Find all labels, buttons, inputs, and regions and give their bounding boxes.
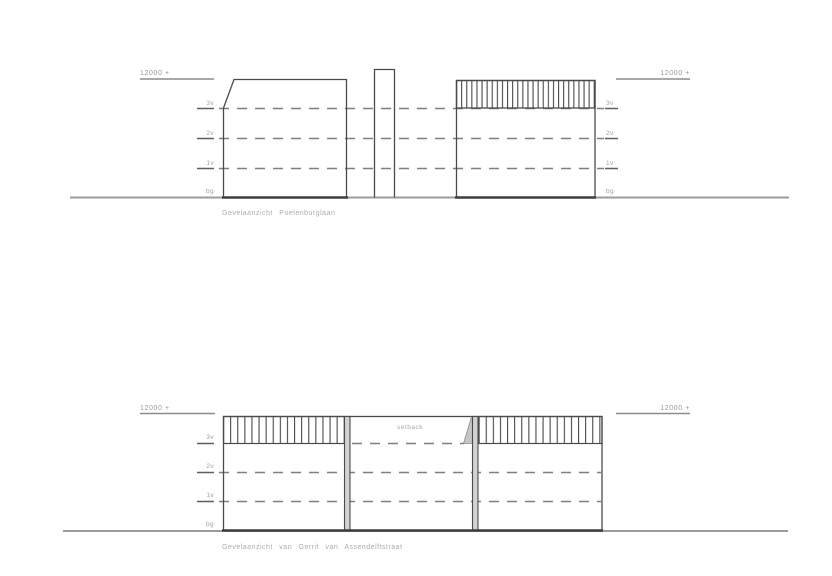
level-label-bg-right: bg bbox=[606, 188, 622, 195]
setback-label: setback bbox=[370, 424, 450, 431]
level-label-2v-left: 2v bbox=[197, 463, 214, 470]
datum-label-right: 12000 + bbox=[640, 70, 690, 78]
level-label-3v-left: 3v bbox=[197, 100, 214, 107]
top-elevation-drawing bbox=[70, 70, 789, 198]
datum-label-left: 12000 + bbox=[140, 405, 170, 413]
level-label-1v-left: 1v bbox=[197, 160, 214, 167]
bottom-drawing-caption: Gevelaanzicht van Gerrit van Assendelfts… bbox=[222, 544, 403, 552]
party-wall-right bbox=[473, 417, 479, 531]
level-label-2v-left: 2v bbox=[197, 130, 214, 137]
right-section-hatched-band bbox=[479, 417, 603, 444]
setback-slope bbox=[464, 417, 473, 444]
top-drawing-caption: Gevelaanzicht Poelenburglaan bbox=[222, 210, 335, 218]
level-label-2v-right: 2v bbox=[606, 130, 622, 137]
tower-outline bbox=[375, 70, 395, 198]
datum-label-right: 12000 + bbox=[640, 405, 690, 413]
level-label-1v-left: 1v bbox=[197, 492, 214, 499]
left-section-hatched-band bbox=[224, 417, 345, 444]
datum-label-left: 12000 + bbox=[140, 70, 170, 78]
party-wall-left bbox=[345, 417, 351, 531]
level-label-1v-right: 1v bbox=[606, 160, 622, 167]
level-label-3v-right: 3v bbox=[606, 100, 622, 107]
level-label-3v-left: 3v bbox=[197, 434, 214, 441]
level-label-bg-left: bg bbox=[197, 521, 214, 528]
elevation-linework bbox=[0, 0, 832, 576]
elevation-drawing-sheet: 12000 + 12000 + 3v 2v 1v bg 3v 2v 1v bg … bbox=[0, 0, 832, 576]
right-building-hatched-top-band bbox=[457, 81, 596, 109]
bottom-elevation-drawing bbox=[63, 414, 788, 532]
level-label-bg-left: bg bbox=[197, 188, 214, 195]
